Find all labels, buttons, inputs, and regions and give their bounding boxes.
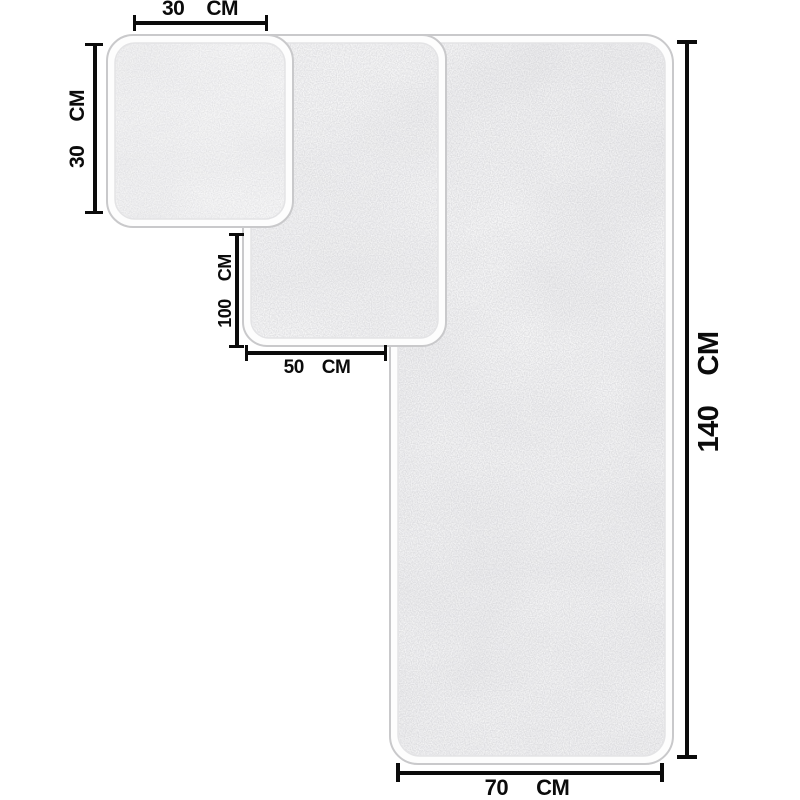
towel-small	[107, 35, 293, 227]
towel-illustration	[0, 0, 800, 800]
towel-size-diagram: 30 CM 30 CM 100 CM 50 CM	[0, 0, 800, 800]
